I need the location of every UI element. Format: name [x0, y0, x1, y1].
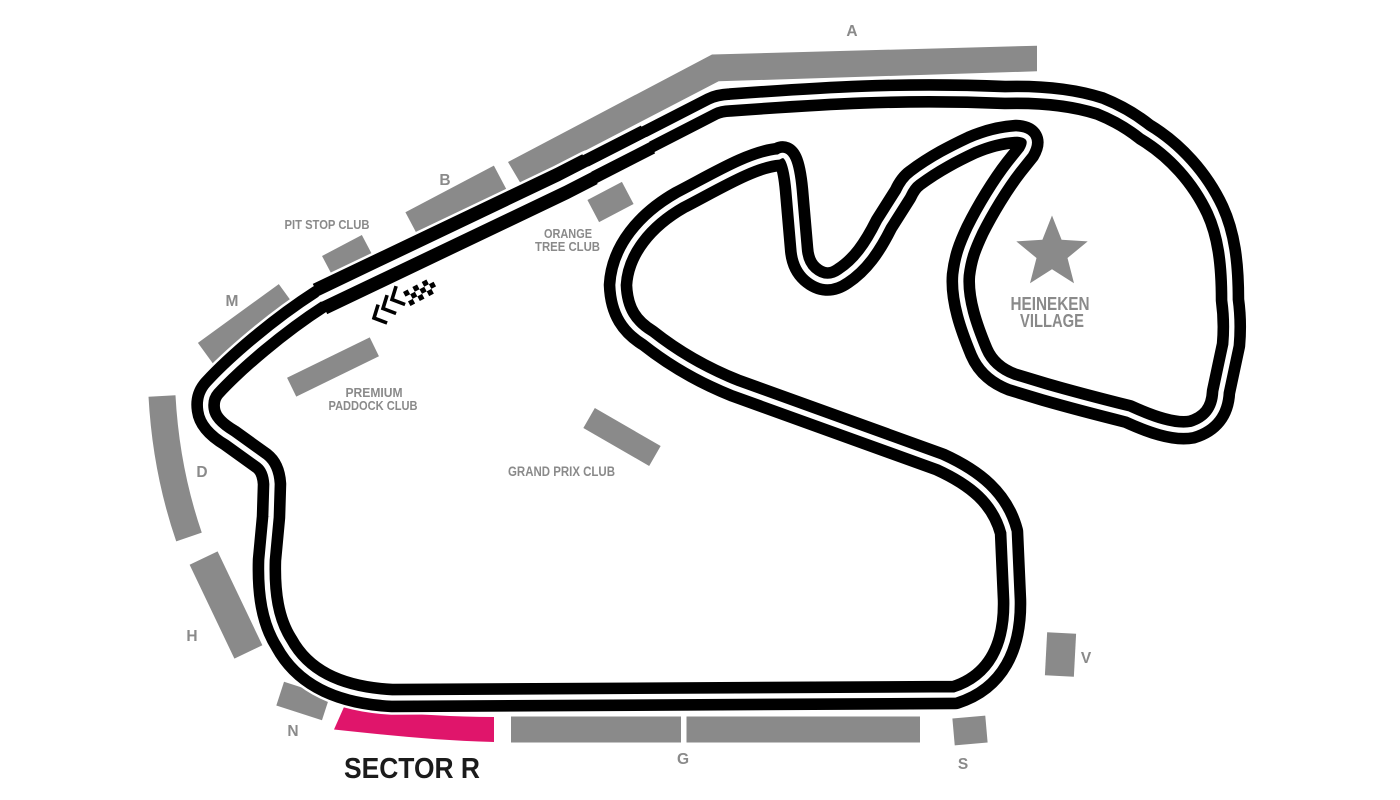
svg-text:N: N	[287, 723, 298, 740]
svg-text:VILLAGE: VILLAGE	[1020, 311, 1084, 331]
svg-text:TREE CLUB: TREE CLUB	[535, 239, 600, 254]
svg-text:GRAND PRIX CLUB: GRAND PRIX CLUB	[508, 464, 615, 479]
svg-text:PIT STOP CLUB: PIT STOP CLUB	[285, 217, 370, 232]
svg-text:PADDOCK CLUB: PADDOCK CLUB	[329, 398, 418, 413]
svg-text:S: S	[958, 756, 968, 773]
svg-text:V: V	[1081, 650, 1092, 667]
svg-text:A: A	[846, 23, 857, 40]
svg-text:H: H	[186, 628, 197, 645]
svg-text:G: G	[677, 751, 689, 768]
svg-text:M: M	[226, 293, 239, 310]
svg-text:B: B	[439, 172, 450, 189]
svg-text:D: D	[196, 464, 207, 481]
svg-text:SECTOR R: SECTOR R	[344, 753, 480, 785]
